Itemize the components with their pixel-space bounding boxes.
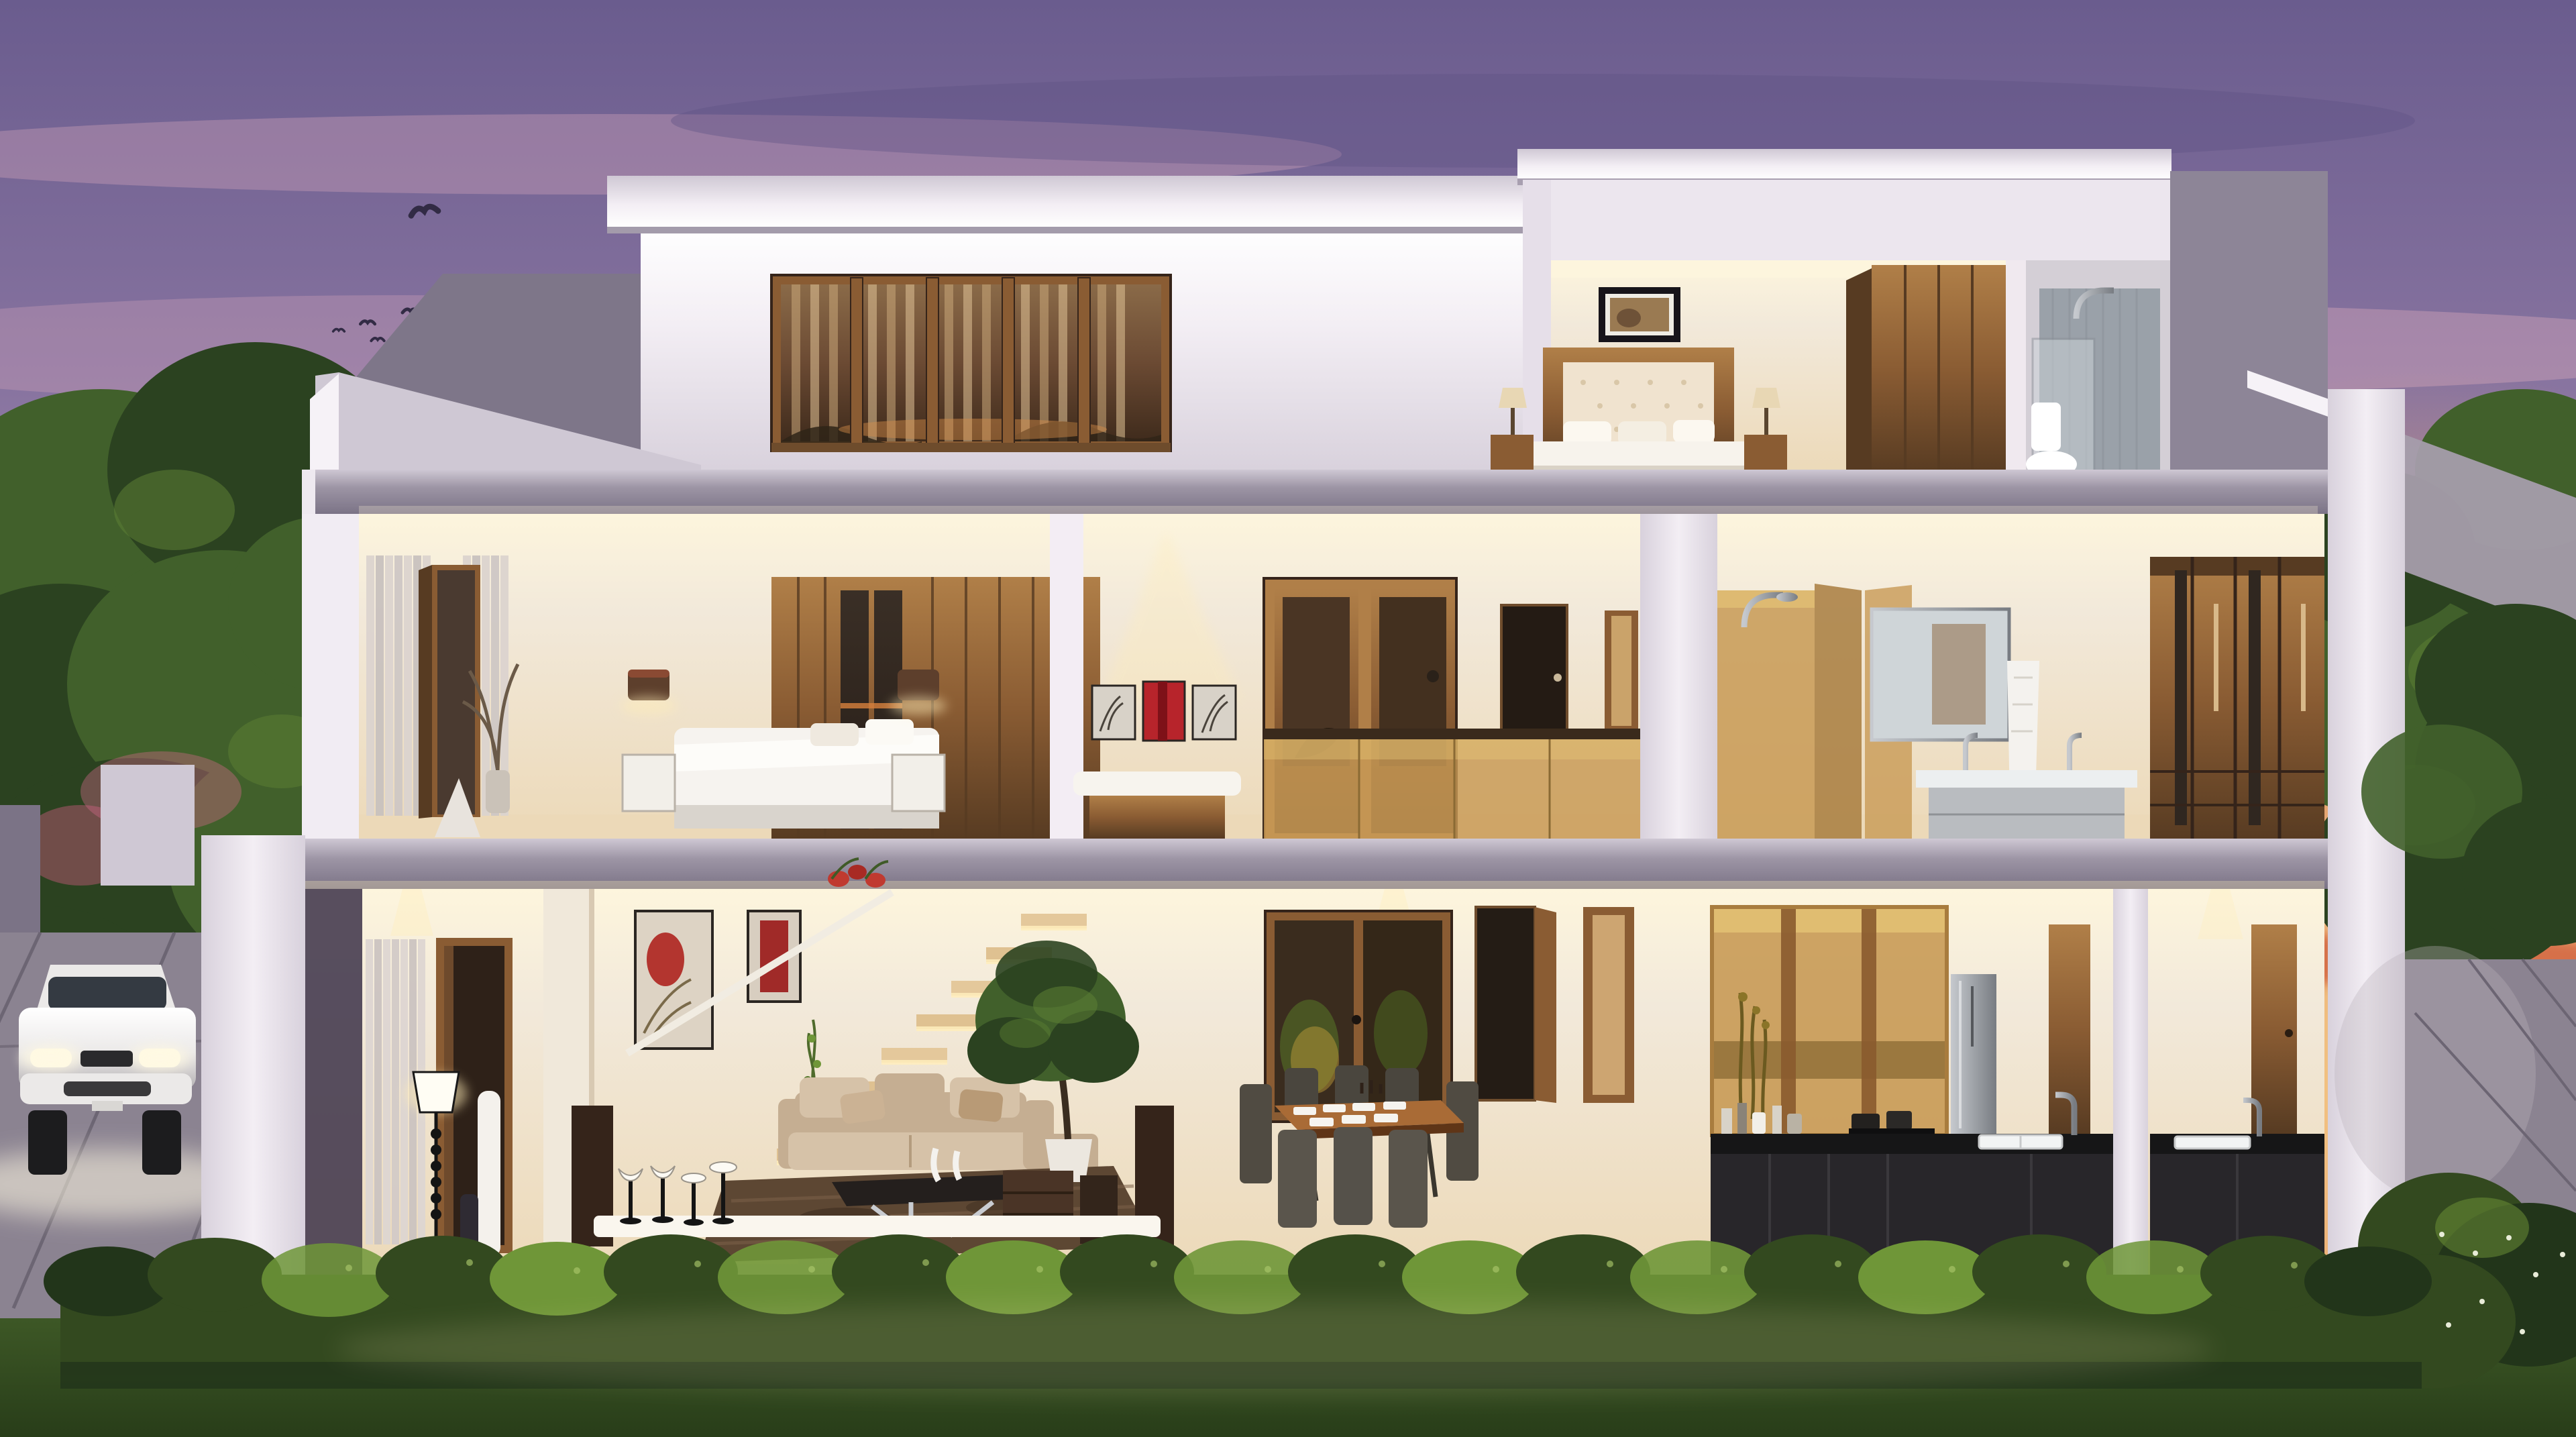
pot — [1851, 1114, 1880, 1130]
amber-glass-balustrade — [1264, 729, 1644, 841]
lamp-shade — [413, 1072, 459, 1112]
top-bathroom — [2026, 260, 2170, 478]
dining-chair — [1240, 1084, 1272, 1183]
throw-pillow — [958, 1089, 1004, 1122]
kitchen-divider-column — [2113, 889, 2148, 1278]
second-floor — [302, 514, 2324, 843]
mirror-insert — [2175, 570, 2187, 825]
bird-icon — [360, 321, 375, 324]
white-column — [1640, 514, 1717, 839]
open-dark-doorway — [1501, 605, 1567, 731]
left-facade-column — [201, 835, 305, 1308]
open-wood-door — [2049, 924, 2090, 1135]
wall-art-triptych — [1092, 682, 1236, 741]
bird-icon — [333, 329, 345, 331]
throw-pillow — [839, 1089, 886, 1124]
pillow — [1673, 420, 1715, 443]
license-plate — [92, 1101, 123, 1111]
wardrobe-handle — [2301, 604, 2306, 711]
grille — [80, 1051, 133, 1067]
pot — [1886, 1111, 1912, 1130]
window-sill — [771, 443, 1171, 452]
refrigerator — [1951, 974, 1996, 1135]
curtained-window — [771, 275, 1171, 452]
toilet-cistern — [2031, 403, 2061, 451]
shower-head — [1776, 592, 1798, 602]
dining-chair — [1278, 1130, 1317, 1228]
lamp-shade — [898, 670, 939, 700]
vanity-counter — [1916, 770, 2137, 788]
mirror-insert — [2249, 570, 2261, 825]
gold-glass-window — [1712, 907, 1947, 1135]
open-wardrobe-door — [1846, 268, 1872, 475]
wheel — [28, 1110, 67, 1175]
dining-chair — [1334, 1127, 1373, 1225]
floor-slab-lower — [201, 839, 2328, 889]
cut-wall-left — [302, 514, 359, 839]
pillow — [865, 719, 914, 745]
white-plinth-shelf — [594, 1216, 1161, 1237]
bedroom-door — [419, 565, 480, 818]
tall-white-vase — [478, 1091, 500, 1257]
open-door-leaf — [1535, 907, 1556, 1103]
utility-sink — [2175, 1136, 2250, 1149]
door-handle — [1352, 1015, 1361, 1024]
door-handle — [1427, 670, 1439, 682]
house-cutaway — [201, 149, 2576, 1317]
bed-with-tufted-headboard — [1513, 348, 1762, 476]
handrail — [1264, 729, 1644, 739]
light-spill — [335, 1301, 2214, 1395]
house-cutaway-illustration — [0, 0, 2576, 1437]
wheel — [142, 1110, 181, 1175]
open-dark-doorway — [1476, 907, 1535, 1100]
walk-in-closet — [2150, 557, 2324, 841]
gold-glass-panel — [1815, 584, 1862, 841]
framed-picture — [1599, 287, 1680, 342]
entrance-foyer — [366, 889, 513, 1262]
pillow — [810, 723, 859, 746]
top-floor-right — [1491, 149, 2328, 478]
floor-slab-upper — [302, 470, 2328, 514]
fascia-band — [1523, 180, 2170, 262]
top-wardrobe — [1846, 265, 2006, 475]
bird-icon — [371, 338, 384, 341]
flat-roof-slab — [1517, 149, 2171, 180]
flat-roof-slab — [607, 176, 1583, 228]
back-cushion — [875, 1073, 945, 1115]
architectural-render-canvas — [0, 0, 2576, 1437]
windshield — [48, 977, 166, 1010]
cut-edge-shadow — [305, 889, 362, 1278]
wardrobe-handle — [2214, 604, 2218, 711]
side-tower-wall — [2170, 171, 2328, 474]
divider-wall — [2006, 260, 2026, 475]
bench — [1073, 771, 1241, 839]
dining-chair — [1389, 1130, 1428, 1228]
